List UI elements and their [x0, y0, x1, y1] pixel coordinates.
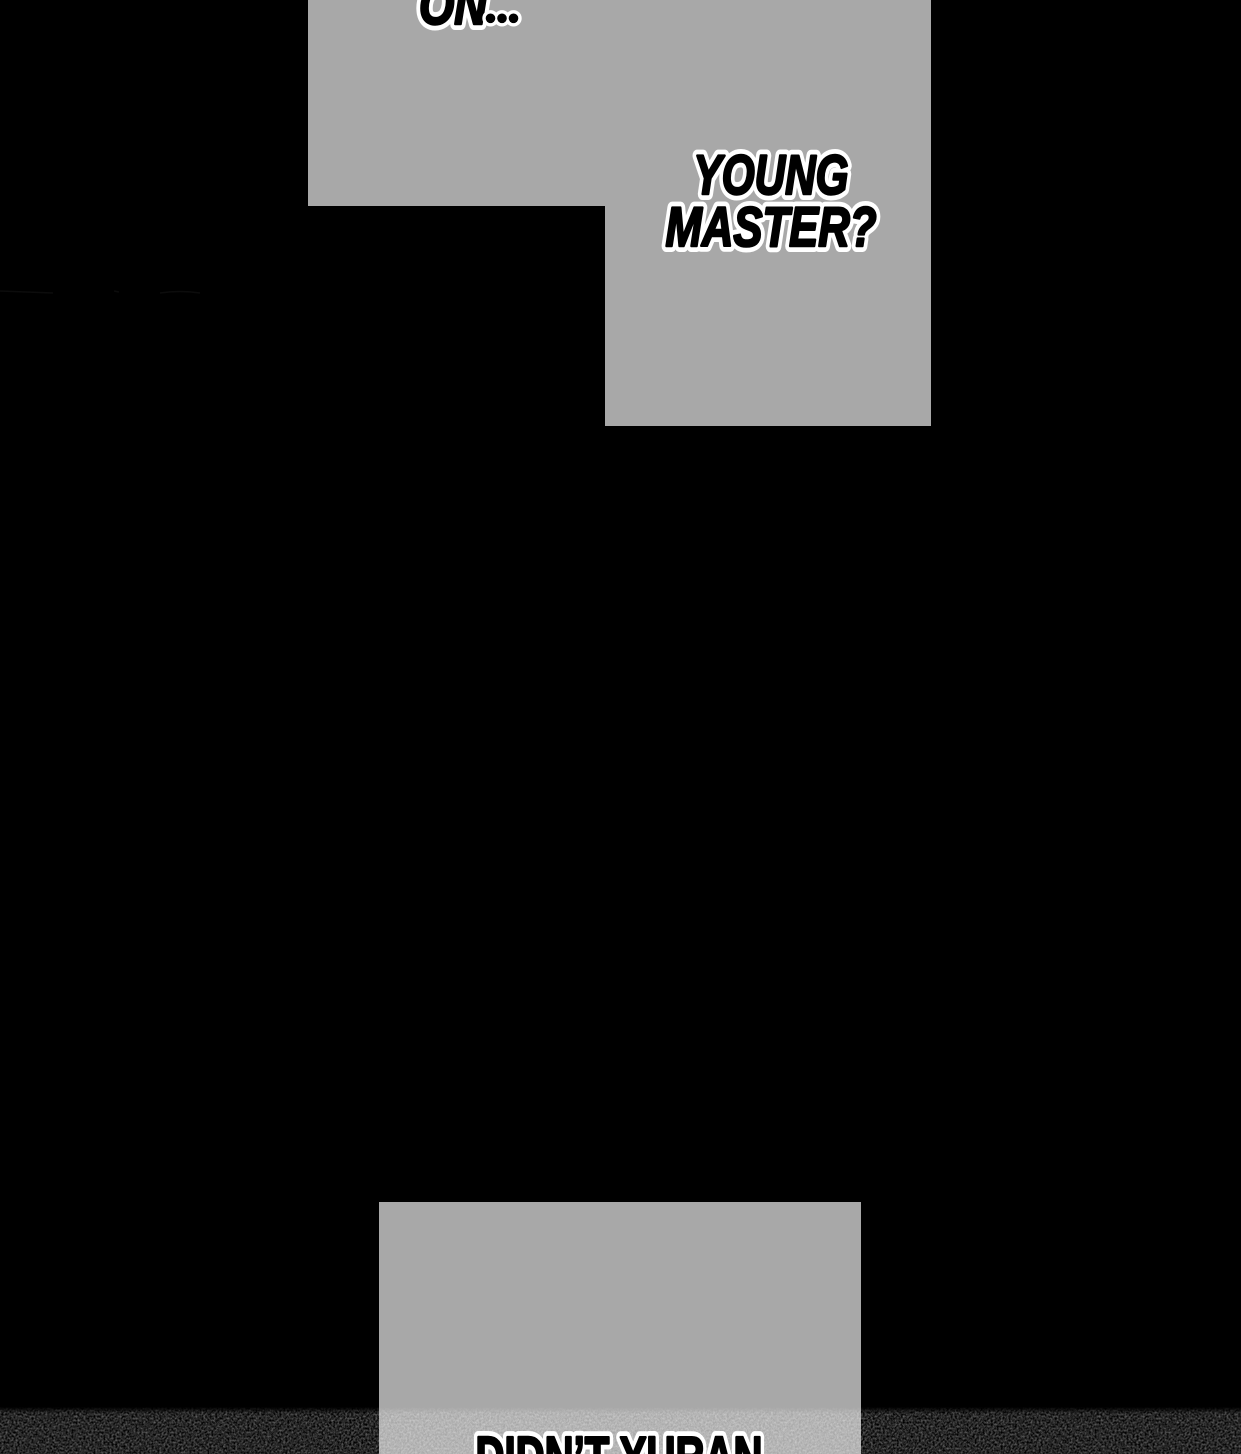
svg-text:DIDN’T YURAN: DIDN’T YURAN — [476, 1425, 763, 1454]
svg-text:ON: ON — [419, 0, 488, 36]
svg-text:MASTER?: MASTER? — [666, 195, 877, 258]
